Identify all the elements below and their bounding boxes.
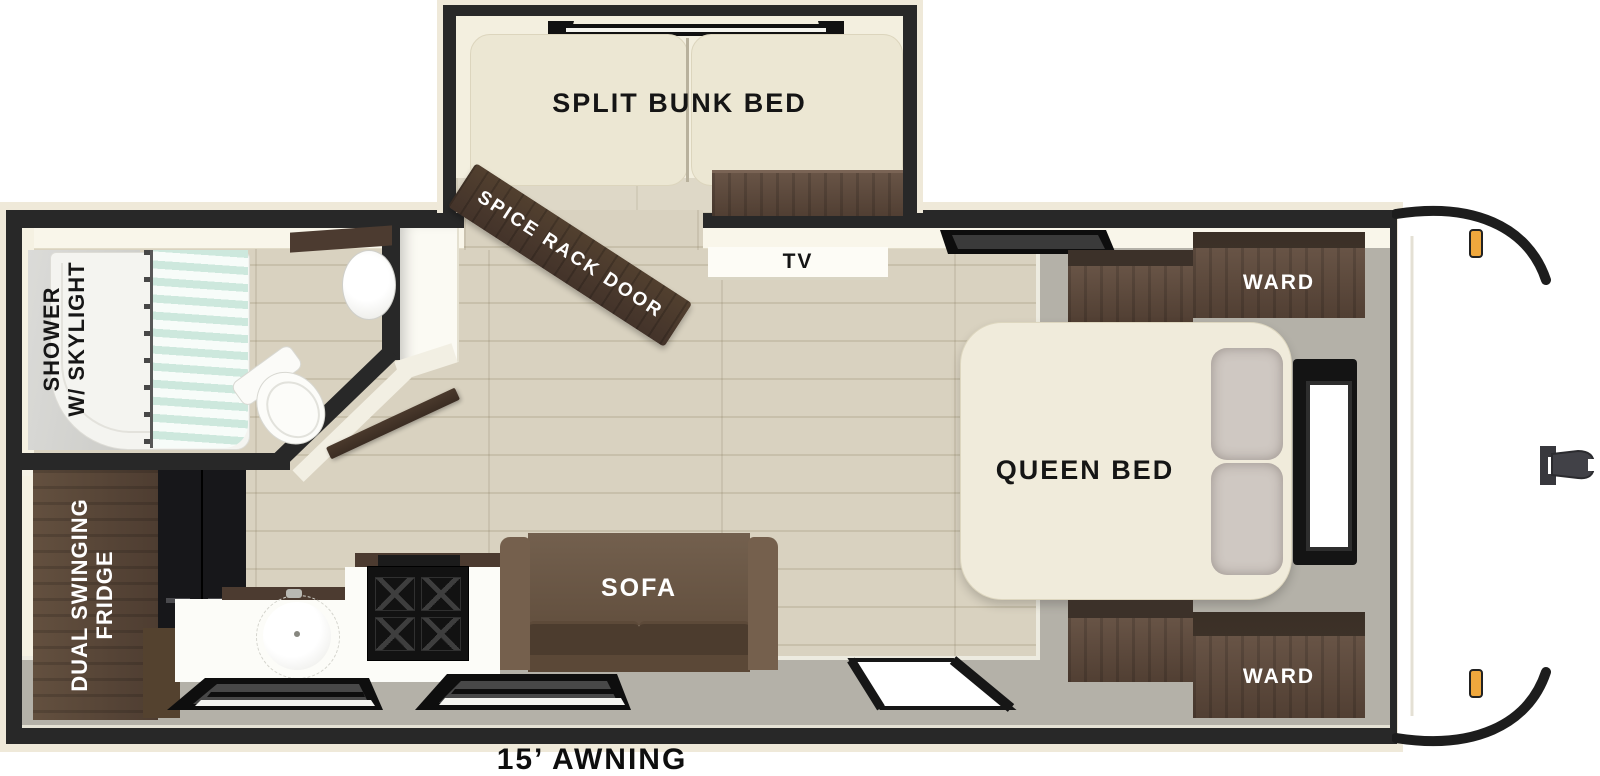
tv-shelf: TV [708,247,888,280]
label-shower: SHOWER W/ SKYLIGHT [39,229,93,449]
shower-curtain [153,250,248,448]
wardrobe-top-face: WARD [1193,248,1365,318]
label-ward-bottom: WARD [1243,665,1315,689]
nightstand-top-face [1068,266,1193,322]
sofa-window [413,672,635,714]
floorplan-canvas: SPLIT BUNK BED SPICE RACK DOOR TV SHOWER… [0,0,1600,776]
bathroom-sink-bowl [342,250,396,320]
stove-burner [421,617,461,651]
front-cap [1392,196,1600,756]
top-wall-inner-face [22,228,1390,249]
bathroom-bottom-wall [6,453,290,470]
label-shower-line2: W/ SKYLIGHT [64,229,89,449]
marker-light-top [1470,230,1482,257]
label-split-bunk-bed: SPLIT BUNK BED [456,88,903,120]
pillow-bottom [1211,463,1283,575]
stove-burner [375,577,415,611]
stove [367,566,469,661]
stove-burner [421,577,461,611]
front-cap-body [1398,210,1556,743]
bunk-dresser [712,170,903,216]
entry-door [845,654,1017,714]
nightstand-bottom-face [1068,618,1193,682]
label-shower-line1: SHOWER [39,229,64,449]
label-fridge-line2: FRIDGE [92,465,117,725]
sofa-arm-right [748,537,778,670]
wardrobe-bottom-face: WARD [1193,636,1365,718]
pillow-top [1211,348,1283,460]
sofa-base [528,655,750,672]
sofa: SOFA [500,533,778,672]
stove-burner [375,617,415,651]
nightstand-bottom [1068,600,1193,682]
label-ward-top: WARD [1243,271,1315,295]
wardrobe-top: WARD [1193,232,1365,318]
kitchen-faucet [286,589,302,598]
bottom-wall-light-edge [22,725,1390,728]
bedroom-side-window [1293,359,1357,565]
kitchen-sink-drain [294,631,300,637]
label-sofa: SOFA [528,573,750,603]
bedroom-side-window-glass [1306,381,1352,551]
label-fridge: DUAL SWINGING FRIDGE [67,465,123,725]
marker-light-bottom [1470,670,1482,697]
stove-handle [378,555,460,566]
nightstand-top [1068,250,1193,322]
sofa-arm-left [500,537,530,670]
wardrobe-bottom: WARD [1193,612,1365,718]
label-awning: 15’ AWNING [412,744,772,776]
kitchen-window [165,676,385,714]
bathroom-cabinet [400,228,459,362]
label-fridge-line1: DUAL SWINGING [67,465,92,725]
label-tv: TV [783,250,814,274]
label-queen-bed: QUEEN BED [960,455,1210,487]
